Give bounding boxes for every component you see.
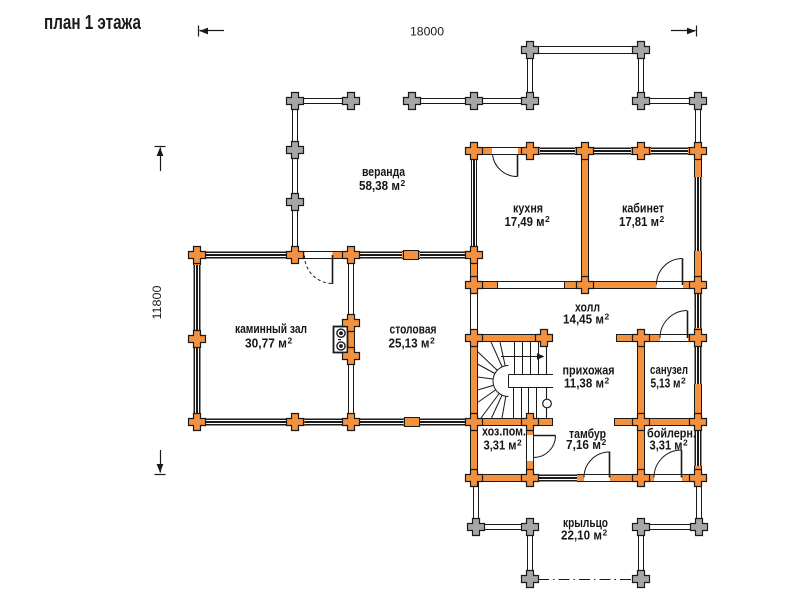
svg-text:18000: 18000 — [410, 25, 444, 39]
svg-text:столовая: столовая — [390, 323, 437, 337]
svg-text:30,77 м: 30,77 м — [245, 337, 287, 351]
svg-text:кухня: кухня — [513, 202, 543, 216]
svg-text:2: 2 — [603, 528, 608, 538]
svg-text:каминный зал: каминный зал — [235, 322, 307, 336]
svg-text:3,31 м: 3,31 м — [650, 439, 683, 453]
svg-text:план 1 этажа: план 1 этажа — [44, 12, 142, 34]
svg-text:3,31 м: 3,31 м — [484, 439, 517, 453]
svg-text:2: 2 — [430, 336, 435, 346]
svg-text:2: 2 — [517, 438, 522, 448]
svg-text:2: 2 — [605, 312, 610, 322]
svg-text:2: 2 — [683, 438, 688, 448]
svg-text:11800: 11800 — [150, 285, 164, 319]
svg-text:14,45 м: 14,45 м — [563, 313, 604, 327]
svg-text:2: 2 — [681, 376, 686, 386]
svg-text:хоз.пом.: хоз.пом. — [482, 425, 526, 439]
svg-text:2: 2 — [288, 336, 293, 346]
svg-text:22,10 м: 22,10 м — [561, 529, 602, 543]
svg-text:17,81 м: 17,81 м — [619, 215, 659, 229]
svg-text:11,38 м: 11,38 м — [564, 377, 604, 391]
svg-text:58,38 м: 58,38 м — [359, 179, 400, 193]
svg-text:7,16 м: 7,16 м — [566, 438, 601, 452]
svg-text:2: 2 — [602, 437, 607, 447]
svg-text:17,49 м: 17,49 м — [505, 215, 545, 229]
svg-text:5,13 м: 5,13 м — [651, 377, 681, 391]
svg-text:веранда: веранда — [362, 165, 406, 179]
svg-text:кабинет: кабинет — [622, 202, 664, 216]
svg-text:2: 2 — [660, 214, 665, 224]
svg-text:2: 2 — [605, 376, 610, 386]
svg-text:25,13 м: 25,13 м — [389, 337, 430, 351]
svg-text:2: 2 — [401, 178, 406, 188]
svg-text:2: 2 — [545, 214, 550, 224]
